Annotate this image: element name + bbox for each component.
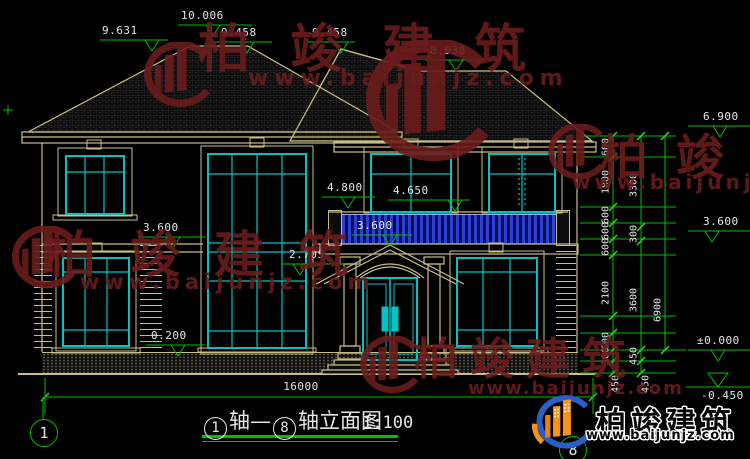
level-eave: 6.900	[703, 110, 739, 123]
overall-width-dim: 16000	[278, 380, 324, 393]
dim-c2-2: 3600	[629, 288, 640, 312]
elevation-drawing-canvas: 9.631 10.006 9.458 9.458 8.938 6.900 4.8…	[0, 0, 750, 459]
brand-logo-site: www.baijunjz.com	[586, 428, 735, 443]
level-window-head: 4.650	[393, 184, 429, 197]
title-axis-start-circle: 1	[204, 417, 227, 440]
title-underline-thin	[202, 441, 398, 442]
dim-c1-5: 2100	[601, 281, 612, 305]
watermark-logo-icon-center	[345, 40, 500, 180]
level-roof-left: 9.631	[102, 24, 138, 37]
dim-c3-0: 6900	[653, 298, 664, 322]
level-plinth: 0.200	[151, 329, 187, 342]
dim-c1-4: 600	[601, 238, 612, 256]
door-handle-left	[382, 307, 388, 331]
axis-bubble-left: 1	[30, 419, 58, 447]
watermark-brand-bottom: 柏竣建筑	[414, 338, 638, 382]
level-zero: ±0.000	[697, 334, 740, 347]
watermark-logo-icon-bottom	[350, 336, 424, 402]
title-axis-end-circle: 8	[273, 417, 296, 440]
watermark-site-left: www.baijunjz.com	[80, 272, 375, 293]
door-handle-right	[392, 307, 398, 331]
window-2f-left	[53, 140, 137, 220]
title-separator: 轴—	[229, 409, 271, 433]
brand-logo-icon	[528, 390, 594, 459]
axis-bubble-left-number: 1	[39, 424, 48, 442]
dim-c2-1: 300	[629, 225, 640, 243]
watermark-site-right: www.baijunjz.com	[572, 172, 750, 192]
drawing-scale: 1:100	[362, 413, 413, 433]
level-balcony-door: 4.800	[327, 181, 363, 194]
drawing-title: 1轴—8轴立面图	[202, 405, 382, 440]
level-f2-right: 3.600	[703, 215, 739, 228]
